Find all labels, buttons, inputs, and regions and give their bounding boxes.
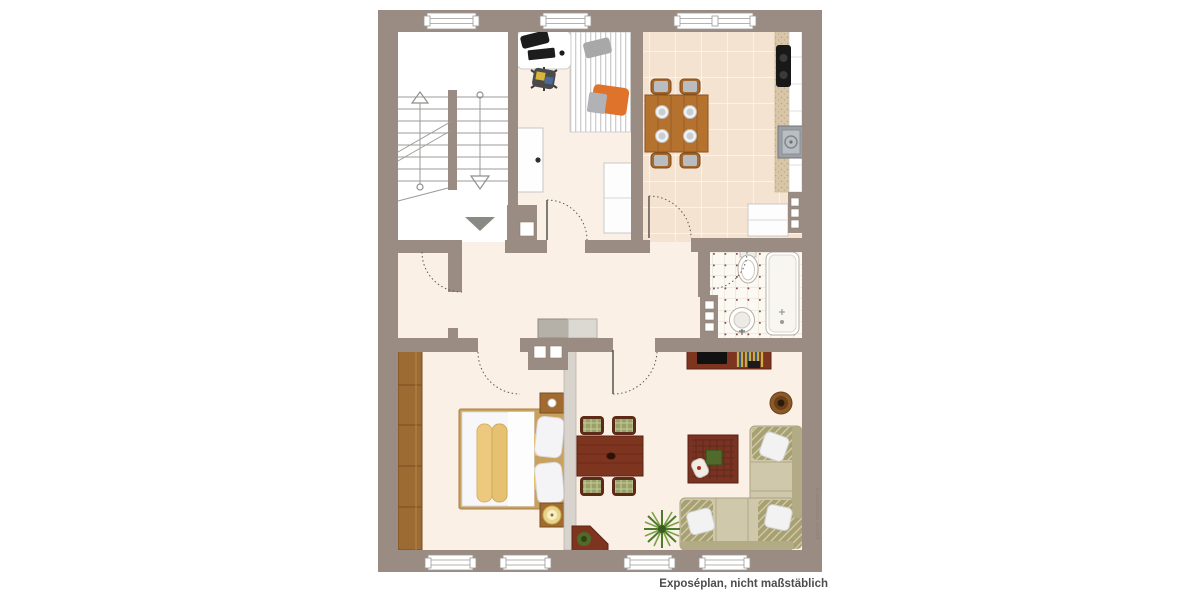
kitchen-shelf bbox=[748, 204, 788, 236]
wall-living-top bbox=[655, 338, 802, 352]
round-side-table bbox=[770, 392, 792, 414]
green-tray bbox=[706, 450, 722, 465]
stair-treads-left bbox=[398, 92, 448, 190]
wall-left bbox=[378, 10, 398, 572]
wall-hall-top-1 bbox=[398, 240, 462, 253]
nightstand-top bbox=[540, 393, 564, 413]
nightstand-bottom bbox=[540, 503, 564, 527]
wall-office-kitchen bbox=[631, 30, 643, 242]
mouse bbox=[559, 50, 564, 55]
kitchen-dining-table bbox=[645, 95, 708, 152]
bedroom-wardrobe bbox=[398, 345, 422, 550]
pillow bbox=[534, 462, 565, 505]
wall-notch bbox=[448, 328, 458, 340]
hall-sideboard-left bbox=[538, 319, 568, 338]
stair-center-wall bbox=[448, 90, 457, 190]
window-bottom-1 bbox=[425, 555, 476, 570]
office-desk bbox=[517, 30, 571, 69]
window-top-1 bbox=[424, 13, 479, 29]
wall-bathroom-left bbox=[698, 250, 710, 297]
throw-pillow bbox=[764, 504, 793, 532]
coffee-table bbox=[688, 435, 738, 483]
window-bottom-3 bbox=[624, 555, 675, 570]
bathtub-drain bbox=[780, 320, 784, 324]
floor-plan-page: Exposéplan, nicht maßstäblich Exposéplan… bbox=[0, 0, 1200, 600]
pillow bbox=[534, 416, 565, 459]
wall-bedroom-top-1 bbox=[398, 338, 478, 352]
wall-hall-top-2 bbox=[505, 240, 547, 253]
blanket bbox=[492, 424, 507, 502]
wall-hall-top-3 bbox=[585, 240, 650, 253]
wardrobe-knob bbox=[535, 157, 540, 162]
double-bed bbox=[459, 409, 565, 509]
toilet bbox=[738, 251, 758, 283]
wall-stairwell-office bbox=[508, 30, 518, 207]
plan-caption: Exposéplan, nicht maßstäblich bbox=[659, 578, 828, 590]
kitchen-sink bbox=[776, 45, 791, 87]
bathtub bbox=[766, 252, 799, 335]
blanket bbox=[477, 424, 492, 502]
watermark-vertical-text: Exposéplan-Grafik bbox=[814, 488, 820, 540]
partition-wall bbox=[564, 350, 576, 550]
window-top-2 bbox=[540, 13, 591, 29]
floor-plan-canvas: Exposéplan, nicht maßstäblich Exposéplan… bbox=[0, 0, 1200, 600]
wall-bathroom-top bbox=[691, 238, 802, 252]
kitchen-stove bbox=[778, 126, 804, 158]
office-dresser bbox=[604, 163, 633, 233]
window-bottom-4 bbox=[699, 555, 750, 570]
office-wardrobe bbox=[517, 128, 543, 192]
window-bottom-2 bbox=[500, 555, 551, 570]
stair-treads-right bbox=[457, 92, 508, 190]
entry-door-spur bbox=[448, 252, 462, 292]
hallway bbox=[538, 319, 597, 338]
media-box bbox=[748, 361, 760, 368]
window-kitchen bbox=[674, 13, 756, 29]
hall-sideboard-right bbox=[568, 319, 597, 338]
tv bbox=[697, 351, 727, 364]
living-dining-table bbox=[577, 436, 643, 476]
